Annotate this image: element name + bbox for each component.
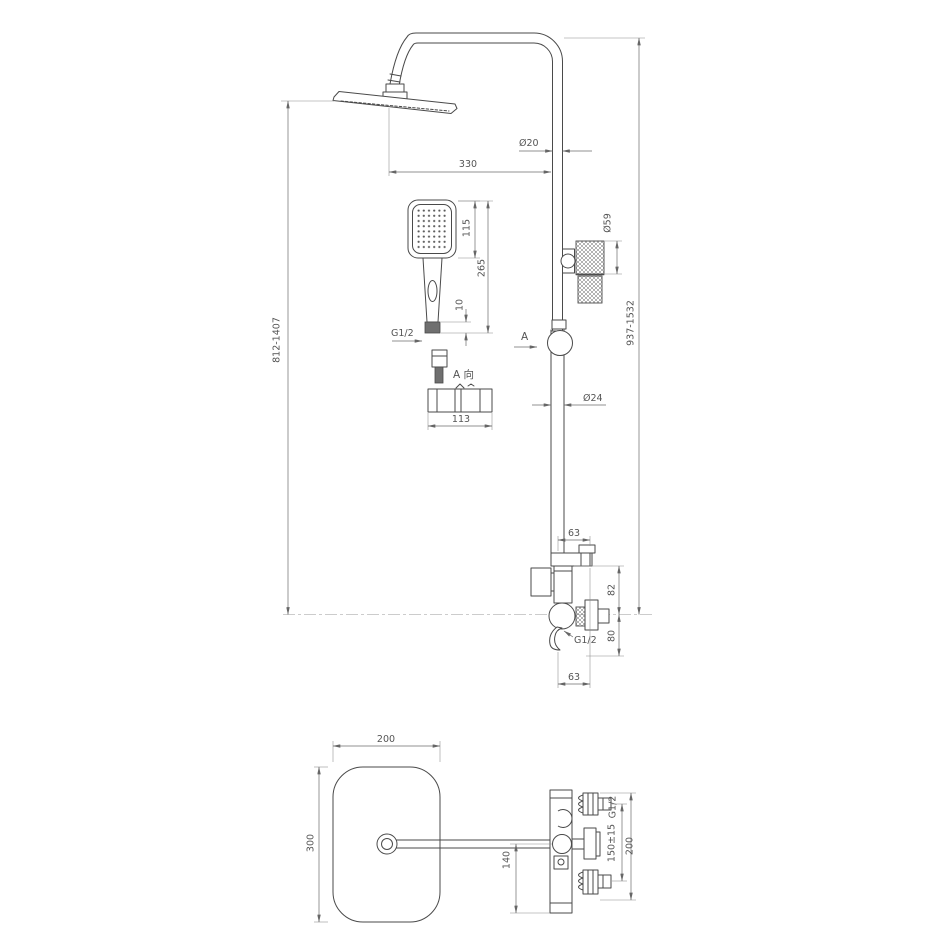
- dim-label-o20: Ø20: [519, 138, 539, 149]
- plan-view: 200 300: [306, 734, 637, 922]
- valve-outlet-hook: [550, 627, 562, 650]
- dim-label-o59: Ø59: [603, 213, 614, 233]
- dim-label-10: 10: [455, 299, 466, 311]
- dim-label-200-valve: 200: [625, 837, 636, 855]
- dim-label-330: 330: [459, 159, 477, 170]
- dim-lock-knob-diameter: Ø59: [603, 213, 623, 274]
- hand-shower-handle: [423, 258, 442, 322]
- dim-label-113: 113: [452, 414, 470, 425]
- valve-wall-union: [531, 568, 551, 596]
- dim-label-g12-valve: G1/2: [574, 635, 597, 646]
- dim-label-g12-inlet: G1/2: [608, 796, 619, 819]
- mixer-valve: [531, 545, 609, 650]
- slider-ring: [548, 320, 573, 356]
- dim-label-63-top: 63: [568, 528, 580, 539]
- dim-label-82: 82: [607, 584, 618, 596]
- label-valve-outlet-thread: G1/2: [564, 631, 597, 646]
- wall-bracket-lock-knob: [561, 241, 604, 303]
- dim-label-300: 300: [306, 834, 317, 852]
- dim-hand-shower-head: 115: [458, 201, 480, 258]
- dim-label-63-bottom: 63: [568, 672, 580, 683]
- plan-inlet-top: [579, 793, 612, 815]
- dim-label-115: 115: [462, 219, 473, 237]
- section-label-a: A: [521, 331, 529, 343]
- valve-body: [554, 566, 572, 603]
- dim-label-150-15: 150±15: [607, 824, 618, 862]
- dim-inlet-thread: G1/2: [608, 796, 619, 819]
- plan-valve-body: [550, 790, 611, 913]
- dim-label-140: 140: [502, 851, 513, 869]
- dim-label-80: 80: [607, 630, 618, 642]
- rain-head: [333, 84, 457, 114]
- dim-overall-height-left: 812-1407: [272, 101, 335, 615]
- dim-riser-diameter: Ø24: [532, 393, 606, 405]
- hand-shower-collar: [425, 322, 440, 333]
- dim-label-200-head: 200: [377, 734, 395, 745]
- valve-round-body: [549, 603, 575, 629]
- dim-label-265: 265: [477, 259, 488, 277]
- hose-connector: [432, 350, 447, 383]
- dim-label-o24: Ø24: [583, 393, 603, 404]
- dim-hand-shower-collar: 10: [441, 299, 471, 346]
- dim-head-depth: 300: [306, 767, 329, 922]
- dim-top-pipe-diameter: Ø20: [519, 138, 592, 151]
- shower-system-drawing: Ø20 330 115 265: [0, 0, 950, 950]
- dim-label-812-1407: 812-1407: [272, 317, 283, 363]
- detail-view-title: A 向: [453, 368, 474, 381]
- plan-inlet-bottom: [579, 870, 612, 894]
- hand-shower-spray-face: [416, 209, 448, 249]
- label-hand-shower-thread: G1/2: [391, 328, 422, 341]
- valve-handle: [585, 600, 598, 630]
- plan-temp-handle: [572, 828, 600, 859]
- front-view: Ø20 330 115 265: [272, 33, 656, 688]
- valve-handle-knurl: [576, 607, 585, 626]
- dim-head-width: 200: [333, 734, 440, 762]
- plan-head-fitting: [377, 834, 397, 854]
- dim-label-937-1532: 937-1532: [626, 300, 637, 346]
- dim-body-offset: 140: [502, 844, 553, 913]
- hand-shower: [408, 200, 456, 333]
- plan-holder-hook: [558, 809, 572, 827]
- shower-arm-and-riser: [388, 33, 564, 553]
- section-a-marker: A: [514, 331, 537, 347]
- technical-drawing-page: Ø20 330 115 265: [0, 0, 950, 950]
- dim-label-g12-hand: G1/2: [391, 328, 414, 339]
